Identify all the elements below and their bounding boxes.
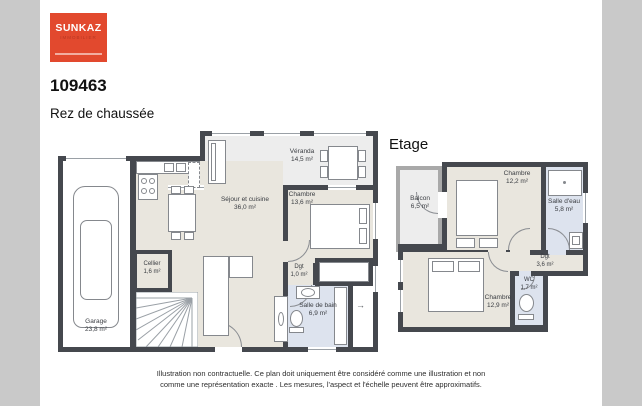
- room-label-living: Séjour et cuisine36,0 m²: [221, 196, 269, 213]
- shower-room-window: [583, 193, 588, 223]
- sink-basin: [572, 236, 580, 245]
- entry-arrow-icon: →: [356, 301, 365, 310]
- upper-floor-title: Etage: [389, 136, 428, 153]
- disclaimer: Illustration non contractuelle. Ce plan …: [40, 369, 602, 390]
- chair-icon: [171, 232, 181, 240]
- chair-icon: [358, 166, 366, 178]
- car-roof: [80, 220, 112, 300]
- room-label-cellier: Cellier1,6 m²: [143, 261, 160, 277]
- sofa-icon: [229, 256, 253, 278]
- disclaimer-line1: Illustration non contractuelle. Ce plan …: [157, 369, 486, 378]
- room-label-bedroom-12-9: Chambre12,9 m²: [485, 294, 512, 311]
- veranda-window: [314, 131, 366, 136]
- reference-number: 109463: [50, 76, 107, 96]
- ground-floor-title: Rez de chaussée: [50, 106, 154, 121]
- room-label-veranda: Véranda14,5 m²: [290, 148, 315, 165]
- room-label-garage: Garage23,8 m²: [85, 318, 107, 335]
- bed-foot-icon: [456, 238, 475, 248]
- entry-area: [353, 286, 373, 347]
- bedroom-window: [328, 185, 356, 190]
- kitchen-sink-icon: [164, 163, 174, 172]
- pillow-icon: [359, 228, 367, 244]
- logo-brand: SUNKAZ: [50, 22, 107, 34]
- entry-door-opening: [215, 347, 242, 352]
- sofa-icon: [203, 256, 229, 336]
- veranda-window: [264, 131, 300, 136]
- chair-icon: [358, 150, 366, 162]
- veranda-table-icon: [328, 146, 358, 180]
- logo-subtitle: IMMOBILIER: [50, 35, 107, 40]
- pillow-icon: [458, 261, 480, 272]
- room-label-bedroom-12-2: Chambre12,2 m²: [504, 170, 531, 187]
- room-label-bathroom: Salle de bain6,9 m²: [299, 302, 337, 319]
- dining-table-icon: [168, 194, 196, 232]
- toilet-tank: [289, 327, 304, 333]
- bathroom-window: [308, 347, 336, 352]
- closet-icon: [319, 262, 369, 282]
- bed-foot-icon: [479, 238, 498, 248]
- balcony-door-opening: [438, 192, 447, 218]
- logo-tagline-line: [55, 53, 102, 55]
- veranda-sofa-back: [211, 143, 216, 181]
- bedroom-window: [373, 203, 378, 239]
- disclaimer-line2: comme une représentation exacte . Les me…: [160, 380, 482, 389]
- document-sheet: SUNKAZ IMMOBILIER 109463 Rez de chaussée…: [40, 0, 602, 406]
- cabinet-handle: [278, 312, 284, 326]
- kitchen-sink-icon: [176, 163, 186, 172]
- stairs-icon: [136, 292, 198, 347]
- room-label-shower-room: Salle d'eau5,8 m²: [548, 198, 580, 215]
- fridge-icon: [188, 162, 200, 188]
- room-label-dgt-upper: Dgt3,6 m²: [536, 254, 553, 270]
- toilet-icon: [519, 294, 534, 312]
- room-label-balcony: Balcon6,5 m²: [410, 195, 430, 212]
- veranda-window: [212, 131, 250, 136]
- page: SUNKAZ IMMOBILIER 109463 Rez de chaussée…: [0, 0, 642, 406]
- toilet-tank: [518, 314, 534, 320]
- sink-basin: [301, 288, 315, 297]
- bedroom2-window: [398, 260, 403, 282]
- chair-icon: [184, 186, 194, 194]
- chair-icon: [171, 186, 181, 194]
- agency-logo: SUNKAZ IMMOBILIER: [50, 13, 107, 62]
- pillow-icon: [359, 208, 367, 224]
- pillow-icon: [432, 261, 454, 272]
- chair-icon: [320, 166, 328, 178]
- room-label-dgt-gf: Dgt1,0 m²: [290, 264, 307, 280]
- room-label-wc: WC1,7 m²: [520, 277, 537, 293]
- bedroom-door-opening: [510, 250, 530, 255]
- chair-icon: [320, 150, 328, 162]
- bedroom2-window: [398, 290, 403, 312]
- entry-window: [373, 266, 378, 292]
- shower-drain: [563, 181, 566, 184]
- room-label-bedroom-gf: Chambre13,6 m²: [289, 191, 316, 208]
- bed-icon: [456, 180, 498, 236]
- garage-door: [66, 156, 126, 161]
- chair-icon: [184, 232, 194, 240]
